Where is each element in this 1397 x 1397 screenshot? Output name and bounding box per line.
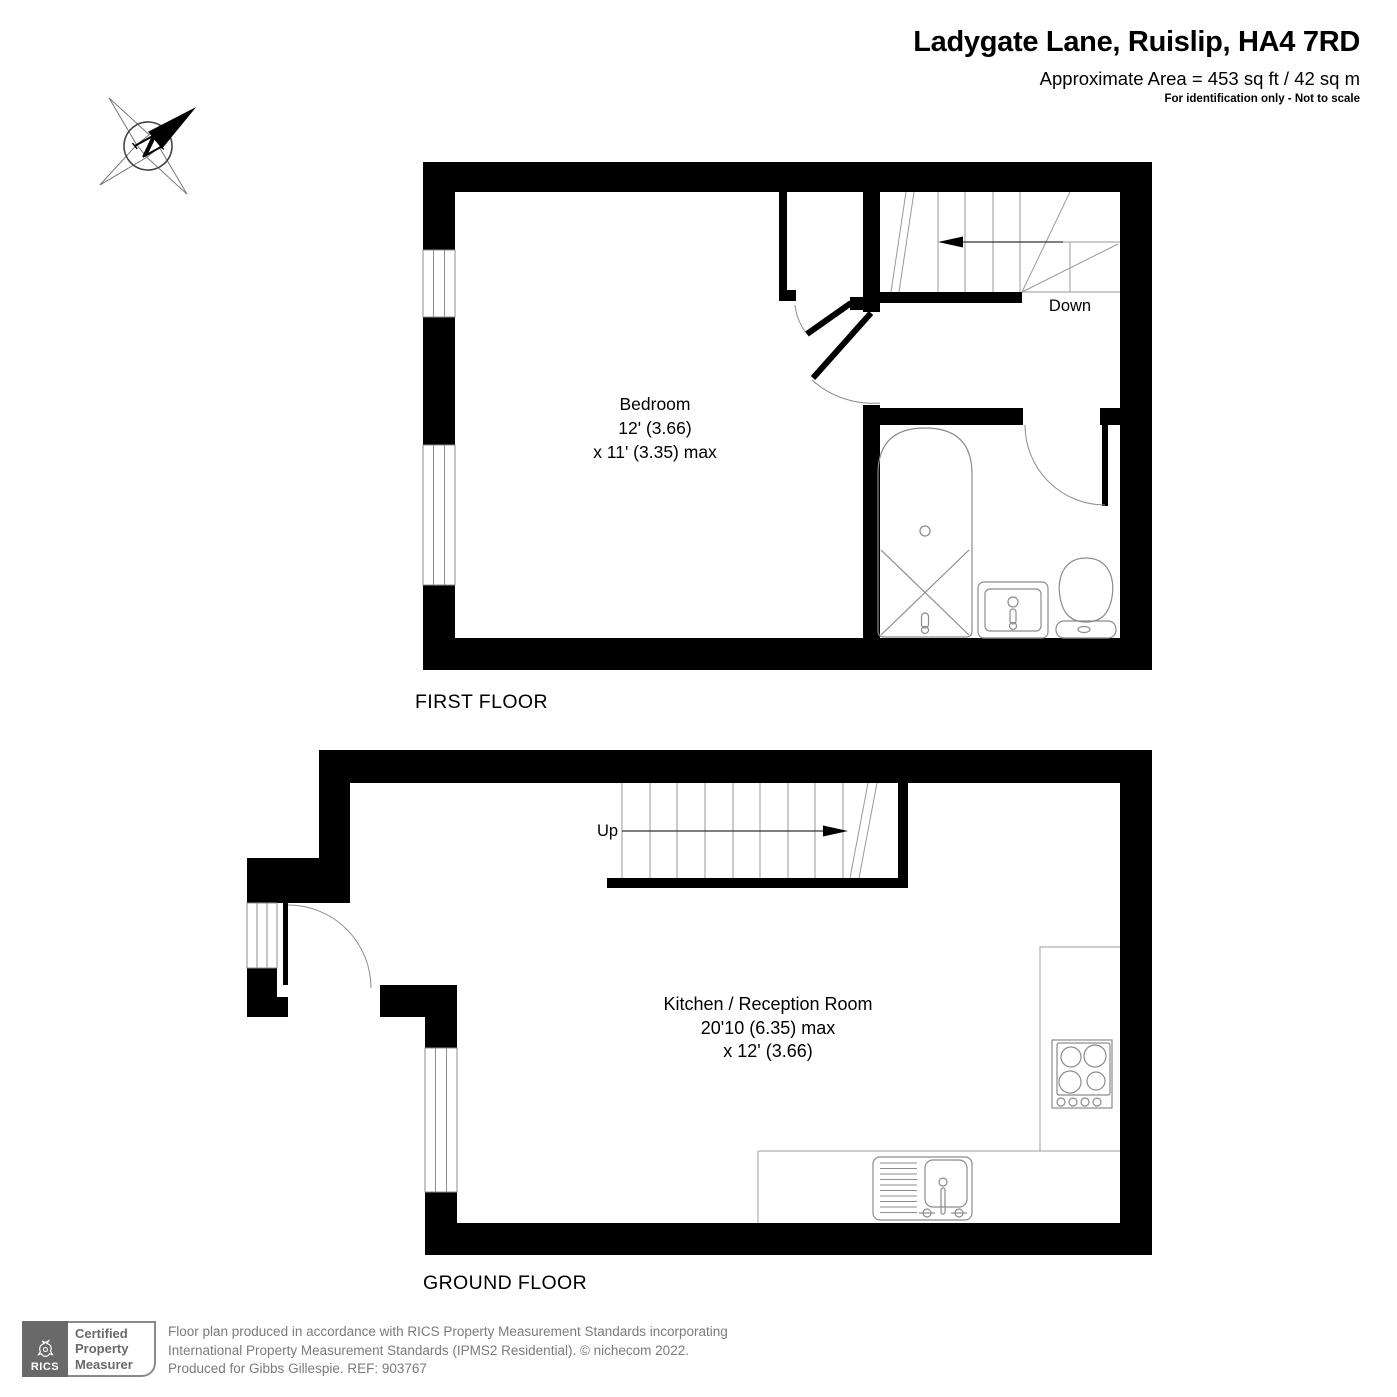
first-floor-plan	[423, 162, 1152, 670]
page-title: Ladygate Lane, Ruislip, HA4 7RD	[913, 26, 1360, 59]
bath-icon	[878, 428, 972, 637]
badge-line: Property	[75, 1341, 154, 1357]
rics-lion-icon	[34, 1338, 56, 1362]
footer-line: International Property Measurement Stand…	[168, 1342, 728, 1361]
rics-badge-left: RICS	[22, 1321, 68, 1377]
room-dim1: 20'10 (6.35) max	[663, 1017, 872, 1041]
footer-line: Floor plan produced in accordance with R…	[168, 1323, 728, 1342]
entry-door-arc	[288, 905, 371, 988]
north-compass-icon: N	[61, 59, 235, 233]
rics-badge-text: Certified Property Measurer	[68, 1321, 156, 1377]
hob-icon	[1052, 1040, 1112, 1108]
down-label: Down	[1049, 297, 1091, 316]
ground-floor-label: GROUND FLOOR	[423, 1272, 587, 1295]
rics-badge: RICS Certified Property Measurer	[22, 1321, 156, 1377]
approximate-area: Approximate Area = 453 sq ft / 42 sq m	[913, 68, 1360, 90]
first-floor-doors	[795, 303, 1105, 505]
footer-line: Produced for Gibbs Gillespie. REF: 90376…	[168, 1360, 728, 1379]
up-label: Up	[597, 822, 618, 841]
room-dim2: x 12' (3.66)	[663, 1040, 872, 1064]
ground-floor-windows	[247, 903, 457, 1192]
bedroom-label-block: Bedroom 12' (3.66) x 11' (3.35) max	[593, 392, 717, 464]
first-floor-walls	[423, 162, 1152, 670]
disclaimer: For identification only - Not to scale	[913, 93, 1360, 105]
room-name: Bedroom	[593, 392, 717, 416]
badge-line: Measurer	[75, 1357, 154, 1373]
up-arrow-icon	[622, 826, 848, 837]
bathroom-sink-icon	[978, 582, 1048, 638]
first-floor-label: FIRST FLOOR	[415, 691, 548, 714]
room-dim2: x 11' (3.35) max	[593, 440, 717, 464]
kitchen-sink-icon	[873, 1157, 972, 1220]
floorplan-page: N	[0, 0, 1397, 1397]
footer-disclaimer: Floor plan produced in accordance with R…	[168, 1323, 728, 1379]
badge-line: Certified	[75, 1326, 154, 1342]
room-name: Kitchen / Reception Room	[663, 993, 872, 1017]
header: Ladygate Lane, Ruislip, HA4 7RD Approxim…	[913, 26, 1360, 105]
rics-brand: RICS	[31, 1362, 59, 1373]
room-dim1: 12' (3.66)	[593, 416, 717, 440]
kitchen-label-block: Kitchen / Reception Room 20'10 (6.35) ma…	[663, 993, 872, 1064]
toilet-icon	[1056, 558, 1116, 638]
floorplan-graphics: N	[0, 0, 1397, 1397]
